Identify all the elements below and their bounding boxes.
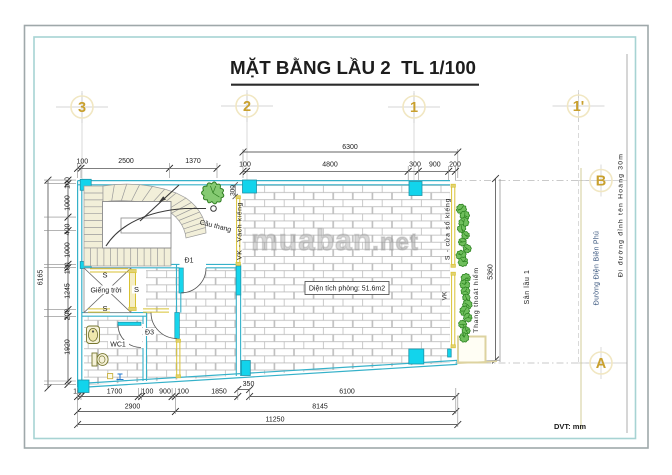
svg-text:1245: 1245: [64, 283, 71, 299]
svg-text:2500: 2500: [118, 158, 134, 165]
svg-text:WC1: WC1: [110, 342, 126, 349]
svg-text:VK - Vách kiếng: VK - Vách kiếng: [235, 202, 244, 260]
svg-text:8145: 8145: [312, 404, 328, 411]
svg-text:6300: 6300: [342, 144, 358, 151]
svg-text:300: 300: [409, 161, 421, 168]
svg-text:1000: 1000: [64, 242, 71, 258]
svg-text:100: 100: [177, 389, 189, 396]
svg-text:S: S: [102, 304, 107, 313]
svg-text:6100: 6100: [339, 389, 355, 396]
svg-text:100: 100: [239, 161, 251, 168]
svg-text:A: A: [596, 356, 607, 372]
svg-text:Thang thoát hiểm: Thang thoát hiểm: [472, 267, 480, 333]
svg-text:1700: 1700: [107, 389, 123, 396]
svg-text:5360: 5360: [487, 264, 494, 280]
svg-text:Diện tích phòng: 51.6m2: Diện tích phòng: 51.6m2: [309, 286, 385, 293]
svg-text:900: 900: [159, 389, 171, 396]
svg-text:muaban.net: muaban.net: [251, 224, 419, 257]
svg-text:6165: 6165: [38, 270, 45, 286]
svg-text:1850: 1850: [211, 389, 227, 396]
svg-text:Sân lầu 1: Sân lầu 1: [522, 270, 531, 305]
svg-text:Đ3: Đ3: [145, 330, 154, 337]
svg-text:1370: 1370: [185, 158, 201, 165]
svg-text:300: 300: [230, 185, 237, 196]
svg-text:1920: 1920: [64, 339, 71, 355]
svg-text:1': 1': [573, 99, 585, 115]
svg-text:S: S: [102, 271, 107, 280]
svg-text:B: B: [596, 174, 606, 190]
svg-text:100: 100: [142, 389, 154, 396]
svg-text:400: 400: [64, 224, 71, 236]
svg-text:100: 100: [76, 158, 88, 165]
svg-text:900: 900: [429, 161, 441, 168]
svg-text:2: 2: [243, 99, 251, 115]
svg-text:VK: VK: [442, 291, 449, 300]
svg-text:200: 200: [64, 309, 71, 321]
svg-text:350: 350: [243, 381, 255, 388]
svg-text:Giếng trời: Giếng trời: [90, 286, 121, 295]
svg-text:1000: 1000: [64, 195, 71, 211]
svg-text:100: 100: [64, 177, 71, 189]
svg-text:Đ1: Đ1: [185, 258, 194, 265]
svg-text:DVT: mm: DVT: mm: [554, 422, 586, 431]
svg-text:1: 1: [410, 100, 418, 116]
svg-text:MẶT BẰNG LẦU 2 TL 1/100: MẶT BẰNG LẦU 2 TL 1/100: [230, 57, 476, 78]
svg-text:Đường Điện Biên Phủ: Đường Điện Biên Phủ: [593, 231, 601, 306]
svg-text:S: S: [134, 285, 139, 294]
svg-text:Đi đường đỉnh tên Hoàng 30m: Đi đường đỉnh tên Hoàng 30m: [617, 153, 625, 277]
svg-text:3: 3: [78, 100, 86, 116]
svg-text:200: 200: [449, 161, 461, 168]
svg-text:11250: 11250: [266, 417, 285, 424]
svg-text:4800: 4800: [322, 161, 338, 168]
svg-text:S - cửa sổ kiếng: S - cửa sổ kiếng: [443, 198, 452, 260]
svg-text:2900: 2900: [125, 404, 141, 411]
